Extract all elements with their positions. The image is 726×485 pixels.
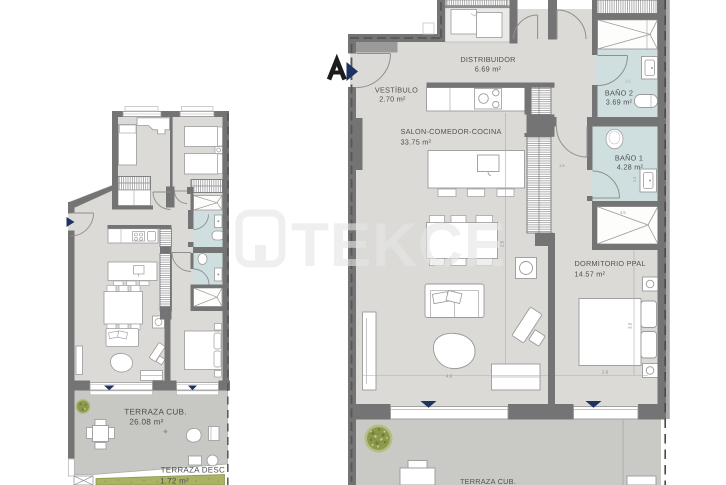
svg-text:2.70 m²: 2.70 m² [379,95,406,104]
svg-text:1.72 m²: 1.72 m² [160,477,189,485]
svg-text:TERRAZA CUB.: TERRAZA CUB. [460,477,516,485]
svg-text:SALON-COMEDOR-COCINA: SALON-COMEDOR-COCINA [401,127,502,136]
svg-text:DISTRIBUIDOR: DISTRIBUIDOR [460,55,515,64]
svg-text:6.69 m²: 6.69 m² [475,65,502,74]
svg-text:TEKCE: TEKCE [291,211,506,280]
svg-text:2.6: 2.6 [602,370,609,375]
svg-text:33.75 m²: 33.75 m² [401,138,432,147]
svg-text:14.57 m²: 14.57 m² [575,270,606,279]
svg-text:0.9: 0.9 [633,177,637,182]
svg-text:DORMITORIO PPAL: DORMITORIO PPAL [575,259,646,268]
svg-text:BAÑO 1: BAÑO 1 [615,154,643,163]
svg-text:26.08 m²: 26.08 m² [129,418,163,427]
svg-text:3.9: 3.9 [628,322,633,329]
svg-text:4.28 m²: 4.28 m² [617,163,644,172]
svg-text:VESTÍBULO: VESTÍBULO [375,86,418,95]
svg-text:1.5: 1.5 [625,79,631,84]
svg-text:3.69 m²: 3.69 m² [606,98,633,107]
svg-text:4.8: 4.8 [446,374,453,379]
svg-text:BAÑO 2: BAÑO 2 [605,89,633,98]
svg-text:1.5: 1.5 [559,163,565,168]
svg-text:TERRAZA CUB.: TERRAZA CUB. [124,408,187,417]
svg-text:TERRAZA DESC: TERRAZA DESC [161,466,225,475]
svg-text:4.5: 4.5 [620,210,626,215]
